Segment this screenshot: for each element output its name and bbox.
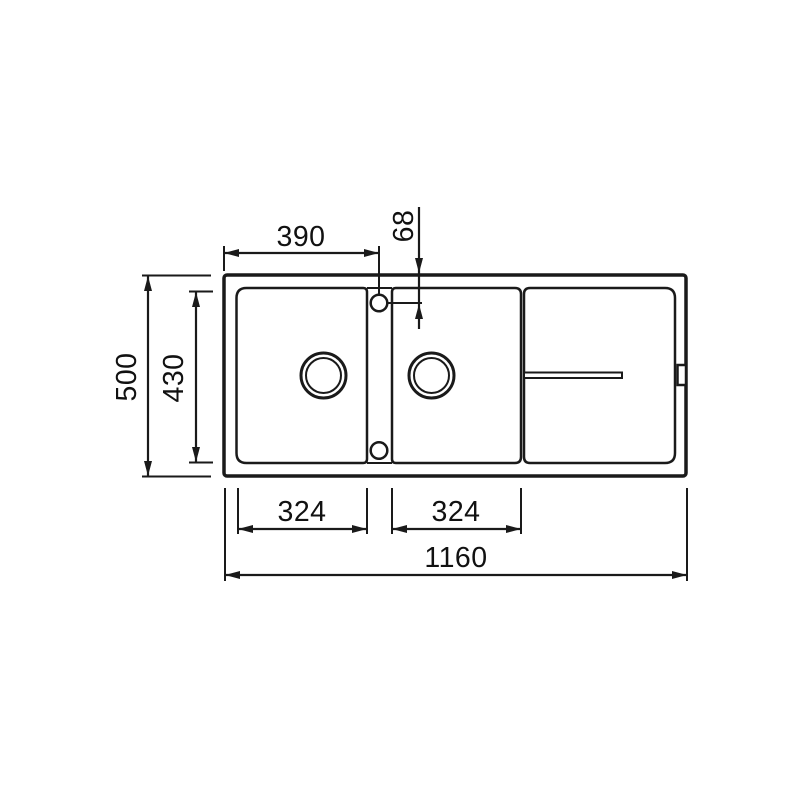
- arrowhead-right: [352, 525, 367, 533]
- dimension-label: 390: [276, 221, 325, 253]
- dim-430: 430: [158, 292, 213, 463]
- arrowhead-left: [238, 525, 253, 533]
- arrowhead-top: [144, 276, 152, 291]
- left-drain: [301, 353, 346, 398]
- overflow-outlet: [678, 365, 687, 385]
- dimension-label: 500: [111, 352, 143, 401]
- arrowhead-right: [364, 249, 379, 257]
- drawing-canvas: 390 68 500 430 324: [0, 0, 800, 800]
- sink-technical-drawing: 390 68 500 430 324: [0, 0, 800, 800]
- dim-324-left: 324: [238, 488, 367, 534]
- left-drain-inner-ring: [306, 358, 341, 393]
- dimension-label: 324: [277, 496, 326, 528]
- arrowhead-left: [225, 571, 240, 579]
- dimension-label: 68: [388, 210, 420, 243]
- dimension-label: 430: [158, 353, 190, 402]
- arrowhead-down: [415, 258, 423, 273]
- tap-hole-top: [371, 295, 388, 312]
- dimension-label: 1160: [424, 542, 487, 574]
- right-drain: [409, 353, 454, 398]
- arrowhead-right: [506, 525, 521, 533]
- dimension-label: 324: [431, 496, 480, 528]
- arrowhead-top: [192, 292, 200, 307]
- arrowhead-left: [224, 249, 239, 257]
- drainer-groove: [524, 373, 622, 379]
- arrowhead-right: [672, 571, 687, 579]
- right-drain-inner-ring: [414, 358, 449, 393]
- dim-324-right: 324: [392, 488, 521, 534]
- arrowhead-left: [392, 525, 407, 533]
- tap-hole-bottom: [371, 442, 388, 459]
- arrowhead-bottom: [144, 461, 152, 476]
- sink-plan-view: [224, 275, 686, 476]
- arrowhead-bottom: [192, 447, 200, 462]
